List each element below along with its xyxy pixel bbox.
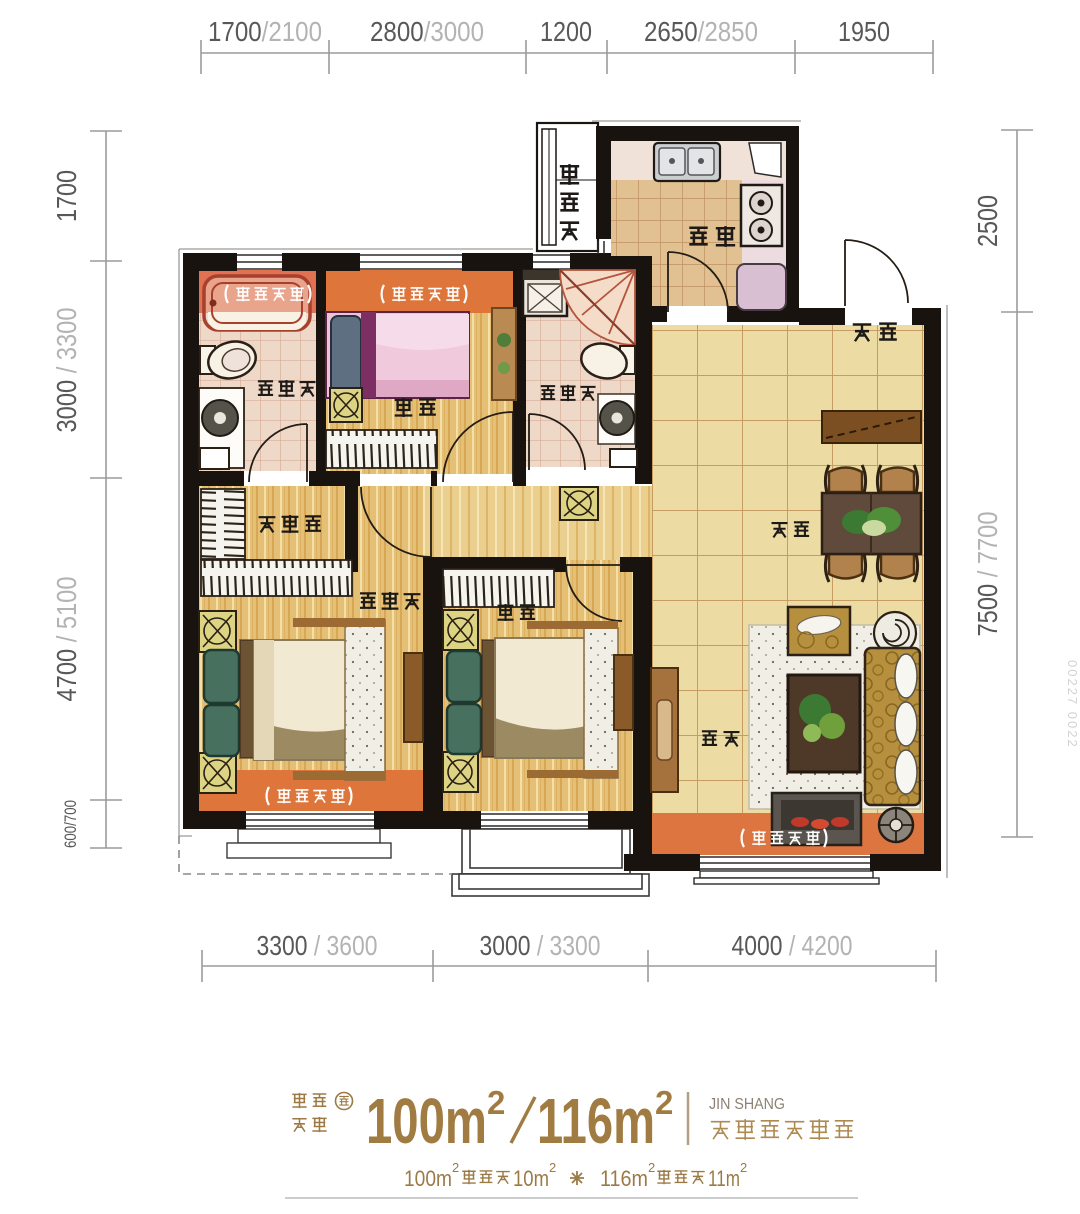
svg-text:7500 / 7700: 7500 / 7700 [972, 512, 1003, 637]
svg-text:2: 2 [452, 1160, 459, 1175]
svg-text:JIN SHANG: JIN SHANG [709, 1096, 785, 1113]
svg-text:10m: 10m [513, 1166, 549, 1191]
svg-text:00227 0022: 00227 0022 [1065, 660, 1080, 749]
svg-text:2650/2850: 2650/2850 [644, 16, 758, 47]
svg-text:1700: 1700 [51, 170, 82, 222]
svg-text:2500: 2500 [972, 195, 1003, 247]
svg-text:2: 2 [655, 1084, 673, 1121]
svg-text:11m: 11m [708, 1166, 740, 1191]
svg-text:1200: 1200 [540, 16, 592, 47]
svg-text:116m: 116m [600, 1166, 648, 1191]
svg-text:600/700: 600/700 [61, 800, 80, 848]
svg-text:3300 / 3600: 3300 / 3600 [257, 930, 378, 961]
svg-text:2: 2 [740, 1160, 747, 1175]
svg-text:100m: 100m [366, 1085, 487, 1157]
svg-text:100m: 100m [404, 1166, 452, 1191]
svg-text:1950: 1950 [838, 16, 890, 47]
svg-text:116m: 116m [537, 1085, 655, 1157]
svg-text:4700 / 5100: 4700 / 5100 [51, 577, 82, 702]
svg-text:2: 2 [648, 1160, 655, 1175]
svg-text:3000 / 3300: 3000 / 3300 [480, 930, 601, 961]
svg-text:2800/3000: 2800/3000 [370, 16, 484, 47]
svg-text:1700/2100: 1700/2100 [208, 16, 322, 47]
svg-text:2: 2 [487, 1084, 505, 1121]
svg-text:4000 / 4200: 4000 / 4200 [732, 930, 853, 961]
svg-text:3000 / 3300: 3000 / 3300 [51, 308, 82, 433]
svg-text:2: 2 [549, 1160, 556, 1175]
